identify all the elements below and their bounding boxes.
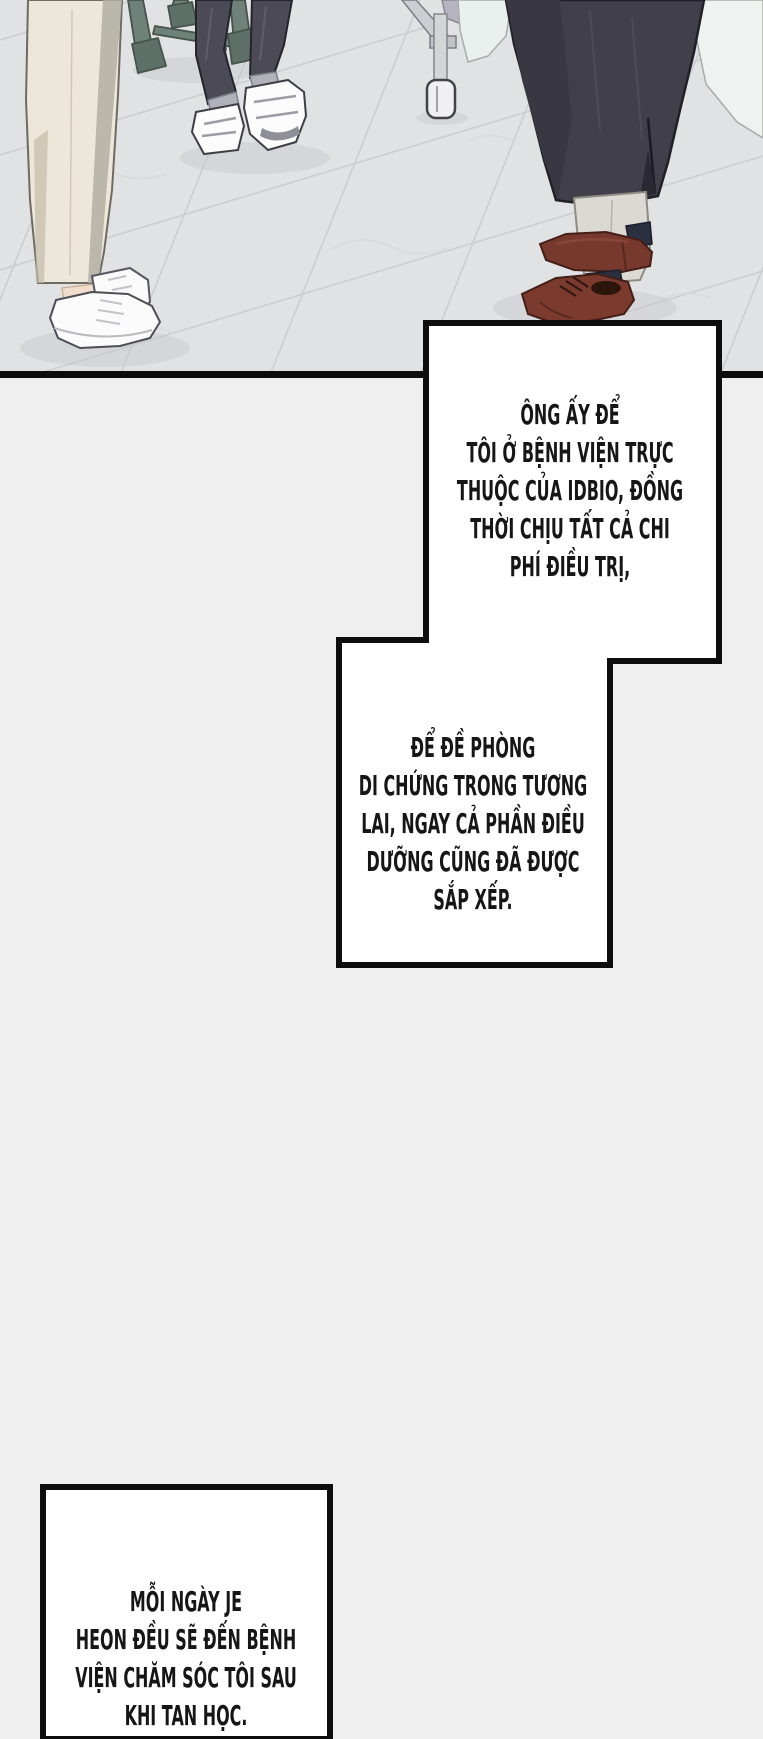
speech-box-2-text: ĐỂ ĐỀ PHÒNG DI CHỨNG TRONG TƯƠNG LAI, NG… <box>325 729 621 919</box>
speech-box-1-text: ÔNG ẤY ĐỂ TÔI Ở BỆNH VIỆN TRỰC THUỘC CỦA… <box>422 396 718 586</box>
speech-line: LAI, NGAY CẢ PHẦN ĐIỀU <box>325 805 621 843</box>
speech-line: ÔNG ẤY ĐỂ <box>422 396 718 434</box>
speech-line: DƯỠNG CŨNG ĐÃ ĐƯỢC <box>325 843 621 881</box>
speech-line: HEON ĐỀU SẼ ĐẾN BỆNH <box>38 1621 334 1659</box>
comic-page: ÔNG ẤY ĐỂ TÔI Ở BỆNH VIỆN TRỰC THUỘC CỦA… <box>0 0 763 1739</box>
speech-line: THỜI CHỊU TẤT CẢ CHI <box>422 510 718 548</box>
speech-box-3-text: MỖI NGÀY JE HEON ĐỀU SẼ ĐẾN BỆNH VIỆN CH… <box>38 1583 334 1735</box>
velcro-sneaker-left <box>192 104 244 154</box>
speech-line: SẮP XẾP. <box>325 881 621 919</box>
speech-line: KHI TAN HỌC. <box>38 1697 334 1735</box>
speech-line: THUỘC CỦA IDBIO, ĐỒNG <box>422 472 718 510</box>
speech-line: ĐỂ ĐỀ PHÒNG <box>325 729 621 767</box>
speech-line: MỖI NGÀY JE <box>38 1583 334 1621</box>
bed-caster-pole <box>434 14 447 84</box>
speech-line: PHÍ ĐIỀU TRỊ, <box>422 548 718 586</box>
bed-caster-wheel <box>427 80 455 118</box>
speech-line: DI CHỨNG TRONG TƯƠNG <box>325 767 621 805</box>
speech-line: VIỆN CHĂM SÓC TÔI SAU <box>38 1659 334 1697</box>
speech-line: TÔI Ở BỆNH VIỆN TRỰC <box>422 434 718 472</box>
